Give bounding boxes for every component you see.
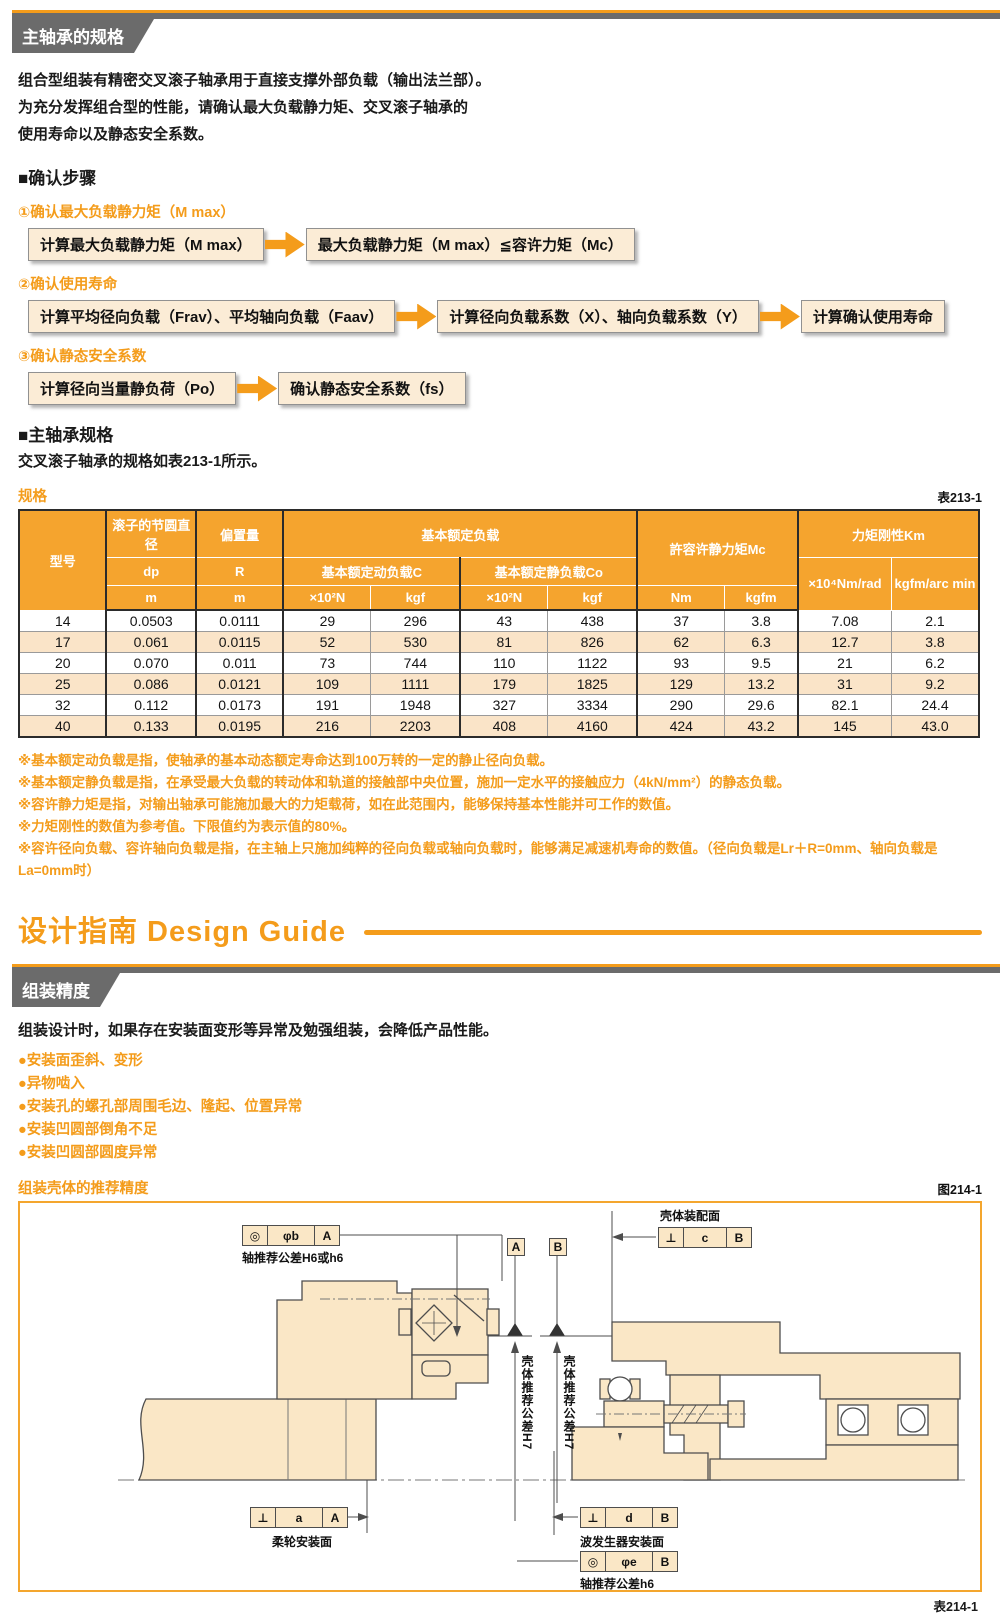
table-cell: 32 [19,695,106,716]
concentricity-icon: ◎ [243,1226,268,1245]
fcf-datum: B [653,1508,677,1527]
table-cell: 0.061 [106,632,195,653]
fcf-wavegen-d: ⊥ d B [580,1507,678,1528]
intro-line: 组合型组装有精密交叉滚子轴承用于直接支撑外部负载（输出法兰部）。 [18,67,982,94]
flow-box: 计算最大负载静力矩（M max） [28,228,264,261]
table-cell: 530 [371,632,460,653]
col-header-nmrad: ×10⁴Nm/rad [798,558,892,611]
table-cell: 0.0111 [196,610,283,632]
table-label: 规格 [18,485,47,506]
table-cell: 7.08 [798,610,892,632]
table-row: 200.0700.011737441101122939.5216.2 [19,653,979,674]
unit-n: ×10²N [283,586,370,611]
intro-paragraph: 组合型组装有精密交叉滚子轴承用于直接支撑外部负载（输出法兰部）。 为充分发挥组合… [18,67,982,148]
table-cell: 37 [637,610,724,632]
fcf-shaft-e-caption: 轴推荐公差h6 [580,1575,654,1592]
col-header-pitch: 滚子的节圆直径 [106,510,195,558]
table-cell: 0.086 [106,674,195,695]
table-cell: 296 [371,610,460,632]
table-cell: 0.133 [106,716,195,738]
table-cell: 826 [548,632,638,653]
unit-m: m [106,586,195,611]
table-cell: 2.1 [891,610,979,632]
table-cell: 0.0503 [106,610,195,632]
section-title-assembly: 组装精度 [12,973,120,1007]
col-header-static: 基本额定静负载Co [460,558,637,586]
flow-arrow-icon [265,232,305,258]
datum-flag-b: B [549,1238,567,1256]
concentricity-icon: ◎ [581,1552,606,1571]
table-cell: 29 [283,610,370,632]
section-title: 主轴承的规格 [12,19,154,53]
table-cell: 0.0115 [196,632,283,653]
table-cell: 24.4 [891,695,979,716]
table-cell: 0.070 [106,653,195,674]
table-row: 320.1120.01731911948327333429029.682.124… [19,695,979,716]
table-cell: 6.3 [725,632,798,653]
bullet-label: 安装凹圆部圆度异常 [27,1145,158,1161]
table-cell: 82.1 [798,695,892,716]
table-cell: 20 [19,653,106,674]
assembly-bullet-list: ●安装面歪斜、变形 ●异物啮入 ●安装孔的螺孔部周围毛边、隆起、位置异常 ●安装… [18,1050,982,1165]
note: ※容许径向负载、容许轴向负载是指，在主轴上只施加纯粹的径向负载或轴向负载时，能够… [18,838,982,882]
table-cell: 6.2 [891,653,979,674]
table-cell: 43.2 [725,716,798,738]
table-cell: 13.2 [725,674,798,695]
note: ※力矩刚性的数值为参考值。下限值约为表示值的80%。 [18,816,982,838]
flow-box: 计算径向当量静负荷（Po） [28,372,236,405]
col-header-dynamic: 基本额定动负载C [283,558,460,586]
bullet-label: 安装凹圆部倒角不足 [27,1122,158,1138]
col-header-model: 型号 [19,510,106,610]
table-cell: 0.0173 [196,695,283,716]
figure-ref: 图214-1 [938,1179,982,1198]
table-cell: 0.011 [196,653,283,674]
fcf-value: a [276,1508,323,1527]
housing-tolerance-label: 壳体推荐公差H7 [519,1355,536,1450]
table-cell: 145 [798,716,892,738]
fcf-shaft-e: ◎ φe B [580,1551,678,1572]
col-header-offset: 偏置量 [196,510,283,558]
table-cell: 3.8 [725,610,798,632]
fcf-value: d [606,1508,653,1527]
table-cell: 73 [283,653,370,674]
table-cell: 21 [798,653,892,674]
list-item: ●异物啮入 [18,1073,982,1096]
table-cell: 14 [19,610,106,632]
table-cell: 408 [460,716,547,738]
bullet-icon: ● [18,1053,27,1069]
table-ref: 表213-1 [938,487,982,506]
unit-nm: Nm [637,586,724,611]
table-cell: 29.6 [725,695,798,716]
bullet-icon: ● [18,1099,27,1115]
col-header-moment: 許容许静力矩Mc [637,510,798,586]
fcf-shaft-b-caption: 轴推荐公差H6或h6 [242,1249,343,1266]
table-cell: 12.7 [798,632,892,653]
flow-arrow-icon [396,304,436,330]
fcf-value: φb [268,1226,315,1245]
table-cell: 93 [637,653,724,674]
fcf-shaft-b: ◎ φb A [242,1225,340,1246]
perpendicularity-icon: ⊥ [659,1228,684,1247]
fcf-datum: B [653,1552,677,1571]
step-3-flow: 计算径向当量静负荷（Po） 确认静态安全系数（fs） [28,372,982,405]
table-cell: 3.8 [891,632,979,653]
table-cell: 1111 [371,674,460,695]
fcf-flexspline-caption: 柔轮安装面 [272,1533,332,1550]
bottom-table-ref: 表214-1 [18,1596,980,1615]
list-item: ●安装凹圆部圆度异常 [18,1142,982,1165]
intro-line: 使用寿命以及静态安全系数。 [18,121,982,148]
notes-block: ※基本额定动负载是指，使轴承的基本动态额定寿命达到100万转的一定的静止径向负载… [18,750,982,882]
flow-box: 计算确认使用寿命 [801,300,945,333]
table-cell: 62 [637,632,724,653]
table-cell: 191 [283,695,370,716]
table-cell: 1825 [548,674,638,695]
fcf-datum: A [315,1226,339,1245]
unit-kgfm: kgfm [725,586,798,611]
section-band [12,964,1000,973]
fcf-value: c [684,1228,727,1247]
housing-tolerance-label: 壳体推荐公差H7 [561,1355,578,1450]
table-cell: 424 [637,716,724,738]
table-cell: 216 [283,716,370,738]
list-item: ●安装面歪斜、变形 [18,1050,982,1073]
table-cell: 52 [283,632,370,653]
design-guide-title: 设计指南 Design Guide [18,908,346,950]
table-cell: 179 [460,674,547,695]
fcf-housing-c: ⊥ c B [658,1227,752,1248]
fcf-value: φe [606,1552,653,1571]
steps-heading: ■确认步骤 [18,164,982,189]
step-1-label: ①确认最大负载静力矩（M max） [18,201,982,222]
step-2-flow: 计算平均径向负载（Frav）、平均轴向负载（Faav） 计算径向负载系数（X）、… [28,300,982,333]
table-cell: 0.0121 [196,674,283,695]
bullet-icon: ● [18,1145,27,1161]
flow-box: 最大负载静力矩（M max）≦容许力矩（Mc） [306,228,635,261]
spec-table: 型号 滚子的节圆直径 偏置量 基本额定负载 許容许静力矩Mc 力矩刚性Km dp… [18,509,980,738]
table-cell: 290 [637,695,724,716]
table-cell: 17 [19,632,106,653]
step-1-flow: 计算最大负载静力矩（M max） 最大负载静力矩（M max）≦容许力矩（Mc） [28,228,982,261]
col-header-dp: dp [106,558,195,586]
table-cell: 2203 [371,716,460,738]
note: ※容许静力矩是指，对输出轴承可能施加最大的力矩载荷，如在此范围内，能够保持基本性… [18,794,982,816]
bullet-icon: ● [18,1122,27,1138]
fcf-datum: B [727,1228,751,1247]
table-cell: 129 [637,674,724,695]
housing-face-label: 壳体装配面 [660,1207,720,1224]
flow-box: 计算平均径向负载（Frav）、平均轴向负载（Faav） [28,300,395,333]
unit-kgf: kgf [548,586,638,611]
spec-table-body: 140.05030.01112929643438373.87.082.1170.… [19,610,979,737]
table-cell: 0.112 [106,695,195,716]
unit-n: ×10²N [460,586,547,611]
bullet-label: 异物啮入 [27,1076,85,1092]
col-header-load: 基本额定负载 [283,510,637,558]
table-cell: 3334 [548,695,638,716]
table-row: 170.0610.01155253081826626.312.73.8 [19,632,979,653]
design-guide-rule [364,930,982,935]
section-band [12,10,1000,19]
list-item: ●安装孔的螺孔部周围毛边、隆起、位置异常 [18,1096,982,1119]
table-cell: 81 [460,632,547,653]
fcf-wavegen-caption: 波发生器安装面 [580,1533,664,1550]
bullet-icon: ● [18,1076,27,1092]
cross-section-drawing [20,1203,980,1590]
assembly-diagram: ◎ φb A 轴推荐公差H6或h6 壳体装配面 ⊥ c B A B 壳体推荐公差… [18,1201,982,1592]
flow-box: 计算径向负载系数（X）、轴向负载系数（Y） [437,300,759,333]
step-3-label: ③确认静态安全系数 [18,345,982,366]
flow-arrow-icon [760,304,800,330]
table-cell: 40 [19,716,106,738]
col-header-r: R [196,558,283,586]
list-item: ●安装凹圆部倒角不足 [18,1119,982,1142]
note: ※基本额定静负载是指，在承受最大负载的转动体和轨道的接触部中央位置，施加一定水平… [18,772,982,794]
table-cell: 31 [798,674,892,695]
table-cell: 9.2 [891,674,979,695]
table-cell: 744 [371,653,460,674]
table-cell: 43 [460,610,547,632]
fcf-flexspline-a: ⊥ a A [250,1507,348,1528]
table-cell: 25 [19,674,106,695]
table-cell: 1122 [548,653,638,674]
bullet-label: 安装孔的螺孔部周围毛边、隆起、位置异常 [27,1099,303,1115]
perpendicularity-icon: ⊥ [251,1508,276,1527]
col-header-arcmin: kgfm/arc min [891,558,979,611]
diagram-sub-heading: 组装壳体的推荐精度 [18,1177,149,1198]
table-cell: 43.0 [891,716,979,738]
table-row: 140.05030.01112929643438373.87.082.1 [19,610,979,632]
bearing-spec-heading: ■主轴承规格 [18,421,982,446]
intro-line: 为充分发挥组合型的性能，请确认最大负载静力矩、交叉滚子轴承的 [18,94,982,121]
perpendicularity-icon: ⊥ [581,1508,606,1527]
step-2-label: ②确认使用寿命 [18,273,982,294]
note: ※基本额定动负载是指，使轴承的基本动态额定寿命达到100万转的一定的静止径向负载… [18,750,982,772]
table-cell: 327 [460,695,547,716]
col-header-rigidity: 力矩刚性Km [798,510,979,558]
bullet-label: 安装面歪斜、变形 [27,1053,143,1069]
unit-m: m [196,586,283,611]
table-cell: 110 [460,653,547,674]
table-cell: 438 [548,610,638,632]
flow-box: 确认静态安全系数（fs） [278,372,465,405]
table-row: 400.1330.01952162203408416042443.214543.… [19,716,979,738]
bearing-spec-text: 交叉滚子轴承的规格如表213-1所示。 [18,450,982,471]
table-cell: 4160 [548,716,638,738]
table-cell: 0.0195 [196,716,283,738]
table-row: 250.0860.01211091111179182512913.2319.2 [19,674,979,695]
table-cell: 1948 [371,695,460,716]
unit-kgf: kgf [371,586,460,611]
table-cell: 9.5 [725,653,798,674]
table-cell: 109 [283,674,370,695]
datum-flag-a: A [507,1238,525,1256]
flow-arrow-icon [237,376,277,402]
fcf-datum: A [323,1508,347,1527]
assembly-intro: 组装设计时，如果存在安装面变形等异常及勉强组装，会降低产品性能。 [18,1019,982,1040]
